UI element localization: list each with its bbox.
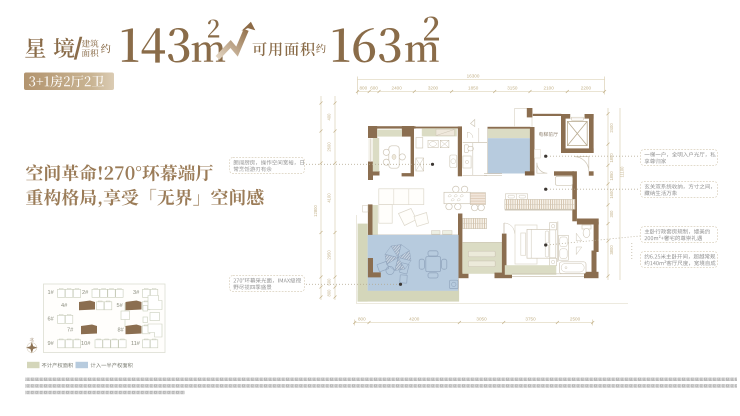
svg-text:4100: 4100	[327, 193, 332, 203]
svg-text:5#: 5#	[117, 303, 124, 309]
svg-text:4200: 4200	[409, 317, 420, 322]
svg-text:3800: 3800	[609, 245, 614, 255]
svg-text:2400: 2400	[392, 86, 403, 91]
svg-text:16300: 16300	[467, 74, 480, 79]
svg-text:12800: 12800	[313, 205, 318, 217]
svg-text:11#: 11#	[131, 341, 141, 347]
svg-text:2#: 2#	[82, 290, 89, 296]
svg-text:3050: 3050	[476, 317, 487, 322]
svg-text:1850: 1850	[609, 153, 614, 163]
svg-text:4#: 4#	[61, 303, 68, 309]
svg-text:2400: 2400	[609, 123, 614, 133]
svg-text:9#: 9#	[48, 341, 55, 347]
svg-text:2200: 2200	[581, 86, 592, 91]
svg-text:2100: 2100	[544, 86, 555, 91]
svg-text:1600: 1600	[609, 189, 614, 199]
svg-text:1850: 1850	[468, 86, 479, 91]
svg-text:8#: 8#	[118, 328, 125, 334]
svg-text:300: 300	[609, 210, 614, 218]
svg-text:3150: 3150	[507, 86, 518, 91]
svg-text:1850: 1850	[609, 171, 614, 181]
svg-text:800: 800	[360, 86, 368, 91]
svg-text:2950: 2950	[327, 250, 332, 260]
svg-text:600: 600	[370, 86, 378, 91]
svg-text:800: 800	[358, 317, 366, 322]
svg-text:1#: 1#	[48, 290, 55, 296]
svg-text:2600: 2600	[327, 142, 332, 152]
svg-text:2500: 2500	[570, 317, 581, 322]
svg-text:6#: 6#	[48, 317, 55, 323]
svg-text:3#: 3#	[133, 290, 140, 296]
svg-text:800: 800	[327, 289, 332, 297]
svg-text:400: 400	[327, 113, 332, 121]
svg-text:3750: 3750	[525, 317, 536, 322]
svg-text:7#: 7#	[67, 328, 74, 334]
svg-text:10#: 10#	[81, 341, 91, 347]
svg-text:3200: 3200	[428, 86, 439, 91]
svg-text:11100: 11100	[620, 166, 625, 178]
